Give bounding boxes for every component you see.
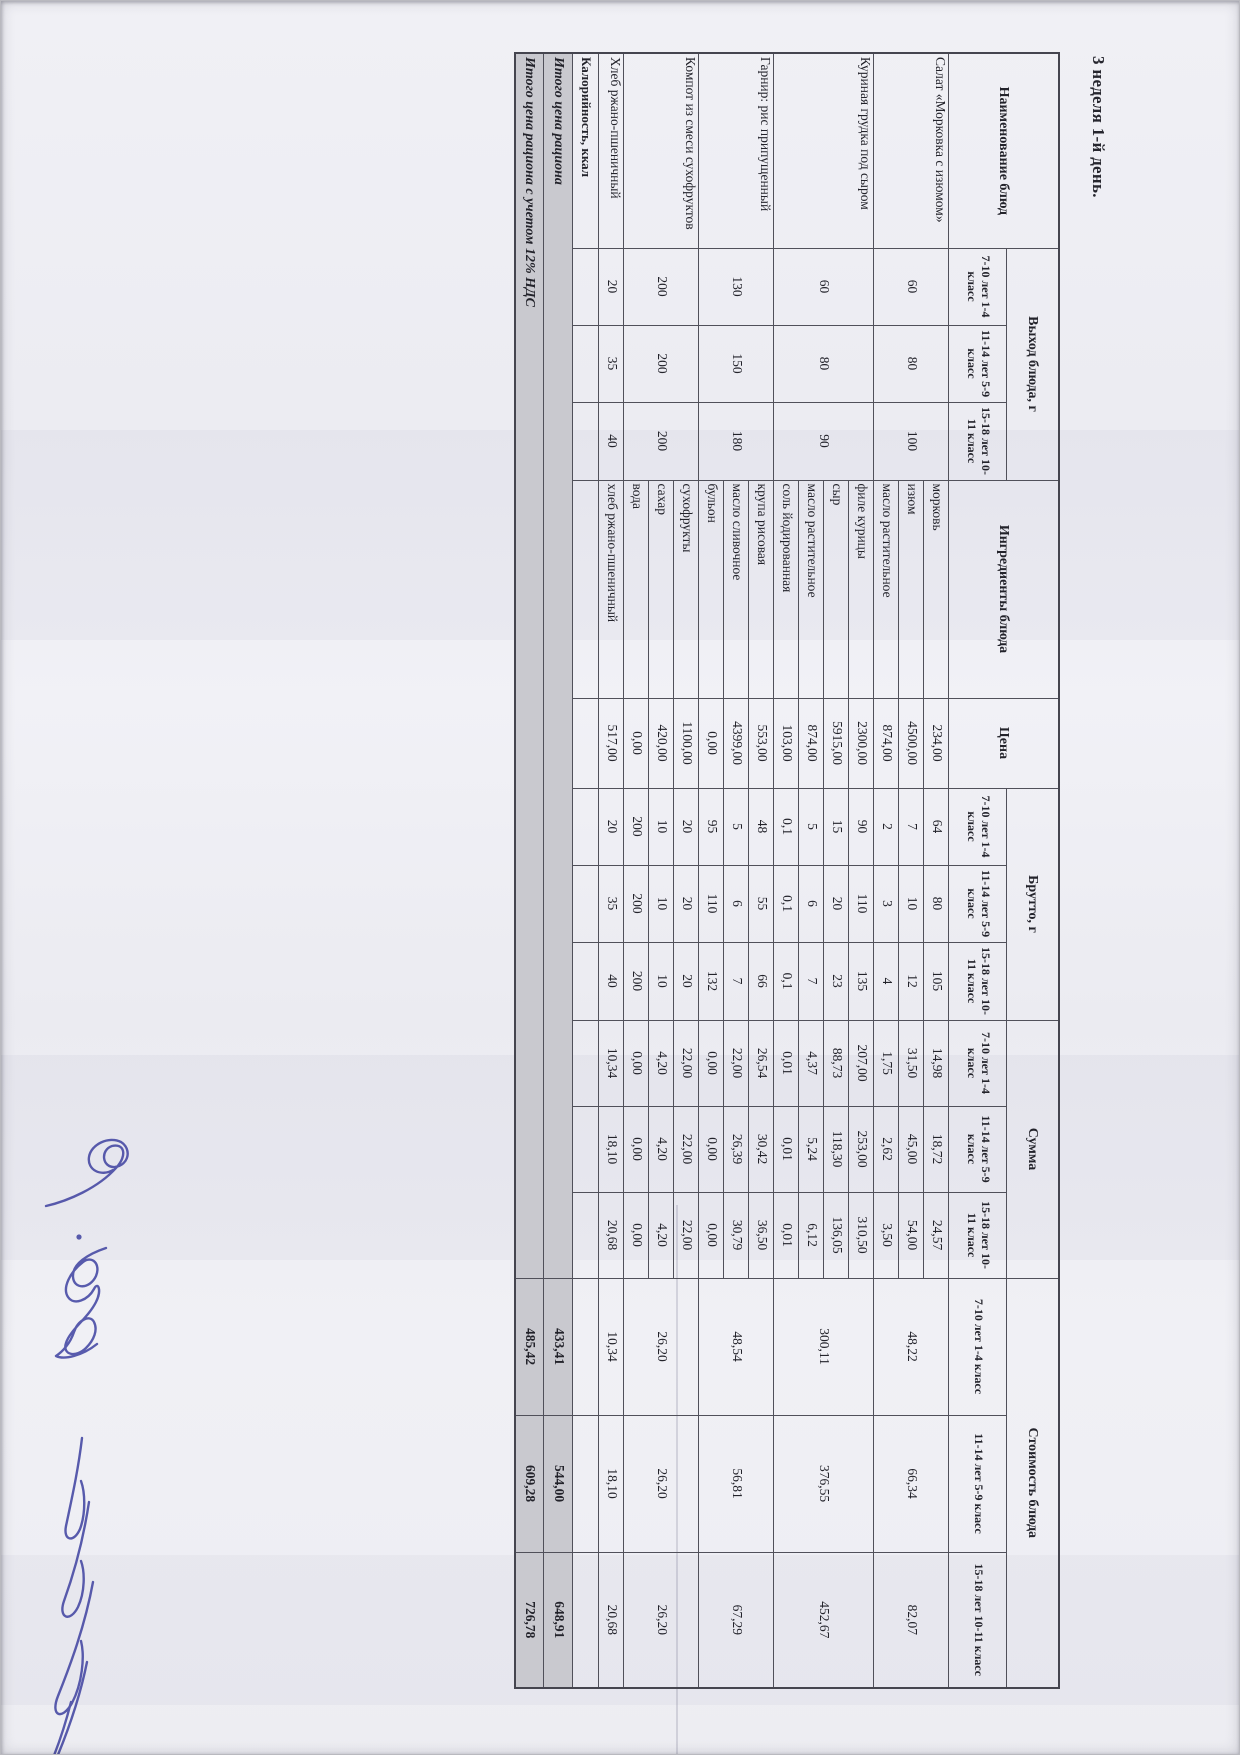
age-group-header: 15-18 лет 10-11 класс	[949, 942, 1007, 1020]
dish-name: Хлеб ржано-пшеничный	[599, 53, 624, 248]
header-price: Цена	[949, 698, 1059, 788]
totals-vat-value: 609,28	[515, 1415, 544, 1552]
cost-cell: 82,07	[874, 1552, 949, 1688]
price-cell: 0,00	[624, 698, 649, 788]
cost-cell: 10,34	[599, 1278, 624, 1415]
brutto-cell: 12	[899, 942, 924, 1020]
cost-cell: 26,20	[624, 1552, 699, 1688]
summa-cell: 22,00	[674, 1192, 699, 1278]
brutto-cell: 10	[899, 865, 924, 942]
price-cell: 4500,00	[899, 698, 924, 788]
empty-cell	[573, 865, 599, 942]
table-row: Компот из смеси сухофруктов 200 200 200 …	[674, 53, 699, 1688]
empty-cell	[573, 1106, 599, 1192]
cost-cell: 48,54	[699, 1278, 774, 1415]
summa-cell: 0,01	[774, 1192, 799, 1278]
price-cell: 420,00	[649, 698, 674, 788]
cost-cell: 452,67	[774, 1552, 874, 1688]
brutto-cell: 4	[874, 942, 899, 1020]
summa-cell: 5,24	[799, 1106, 824, 1192]
brutto-cell: 10	[649, 942, 674, 1020]
signature-ink-dot	[76, 1234, 81, 1239]
table-row: Куриная грудка под сыром 60 80 90 филе к…	[849, 53, 874, 1688]
yield-cell: 80	[874, 325, 949, 402]
age-group-header: 15-18 лет 10-11 класс	[949, 1552, 1007, 1688]
summa-cell: 3,50	[874, 1192, 899, 1278]
yield-cell: 150	[699, 325, 774, 402]
ingredient-cell: сухофрукты	[674, 480, 699, 698]
signature-zigzag	[55, 1582, 93, 1714]
summa-cell: 20,68	[599, 1192, 624, 1278]
empty-cell	[573, 1552, 599, 1688]
ingredient-cell: изюм	[899, 480, 924, 698]
signature-name-script	[56, 1248, 106, 1358]
header-yield: Выход блюда, г	[1007, 248, 1059, 480]
brutto-cell: 200	[624, 788, 649, 865]
signature-zigzag	[62, 1502, 89, 1617]
brutto-cell: 95	[699, 788, 724, 865]
header-name: Наименование блюд	[949, 53, 1059, 248]
cost-cell: 26,20	[624, 1415, 699, 1552]
age-group-header: 7-10 лет 1-4 класс	[949, 1278, 1007, 1415]
age-group-header: 7-10 лет 1-4 класс	[949, 248, 1007, 325]
summa-cell: 310,50	[849, 1192, 874, 1278]
yield-cell: 40	[599, 402, 624, 480]
brutto-cell: 7	[899, 788, 924, 865]
summa-cell: 22,00	[674, 1106, 699, 1192]
price-cell: 874,00	[874, 698, 899, 788]
summa-cell: 0,00	[699, 1192, 724, 1278]
yield-cell: 130	[699, 248, 774, 325]
ingredient-cell: масло растительное	[874, 480, 899, 698]
summa-cell: 2,62	[874, 1106, 899, 1192]
summa-cell: 118,30	[824, 1106, 849, 1192]
yield-cell: 200	[624, 325, 699, 402]
empty-cell	[573, 1415, 599, 1552]
price-cell: 2300,00	[849, 698, 874, 788]
summa-cell: 36,50	[749, 1192, 774, 1278]
empty-cell	[573, 248, 599, 325]
ingredient-cell: сахар	[649, 480, 674, 698]
ingredient-cell: сыр	[824, 480, 849, 698]
brutto-cell: 6	[724, 865, 749, 942]
summa-cell: 0,01	[774, 1106, 799, 1192]
brutto-cell: 200	[624, 865, 649, 942]
page-title: 3 неделя 1-й день.	[1060, 52, 1130, 1688]
dish-name: Куриная грудка под сыром	[774, 53, 874, 248]
yield-cell: 20	[599, 248, 624, 325]
menu-cost-table: Наименование блюд Выход блюда, г Ингреди…	[514, 52, 1060, 1689]
price-cell: 1100,00	[674, 698, 699, 788]
price-cell: 553,00	[749, 698, 774, 788]
brutto-cell: 0,1	[774, 942, 799, 1020]
ingredient-cell: крупа рисовая	[749, 480, 774, 698]
yield-cell: 90	[774, 402, 874, 480]
brutto-cell: 2	[874, 788, 899, 865]
summa-cell: 136,05	[824, 1192, 849, 1278]
ingredient-cell: соль йодированная	[774, 480, 799, 698]
brutto-cell: 80	[924, 865, 949, 942]
summa-cell: 24,57	[924, 1192, 949, 1278]
totals-vat-value: 726,78	[515, 1552, 544, 1688]
cost-cell: 18,10	[599, 1415, 624, 1552]
summa-cell: 22,00	[674, 1020, 699, 1106]
price-cell: 103,00	[774, 698, 799, 788]
yield-cell: 60	[774, 248, 874, 325]
summa-cell: 207,00	[849, 1020, 874, 1106]
cost-cell: 66,34	[874, 1415, 949, 1552]
brutto-cell: 0,1	[774, 788, 799, 865]
brutto-cell: 23	[824, 942, 849, 1020]
summa-cell: 88,73	[824, 1020, 849, 1106]
summa-cell: 4,20	[649, 1192, 674, 1278]
brutto-cell: 5	[724, 788, 749, 865]
summa-cell: 26,39	[724, 1106, 749, 1192]
age-group-header: 11-14 лет 5-9 класс	[949, 325, 1007, 402]
summa-cell: 18,10	[599, 1106, 624, 1192]
brutto-cell: 3	[874, 865, 899, 942]
price-cell: 234,00	[924, 698, 949, 788]
header-ingredients: Ингредиенты блюда	[949, 480, 1059, 698]
summa-cell: 4,20	[649, 1106, 674, 1192]
brutto-cell: 0,1	[774, 865, 799, 942]
ingredient-cell: бульон	[699, 480, 724, 698]
ingredient-cell: филе курицы	[849, 480, 874, 698]
yield-cell: 180	[699, 402, 774, 480]
totals-value: 544,00	[544, 1415, 573, 1552]
summa-cell: 30,79	[724, 1192, 749, 1278]
calories-label: Калорийность, ккал	[573, 53, 599, 248]
totals-vat-label: Итого цена рациона с учетом 12% НДС	[515, 53, 544, 1278]
summa-cell: 4,37	[799, 1020, 824, 1106]
summa-cell: 14,98	[924, 1020, 949, 1106]
summa-cell: 54,00	[899, 1192, 924, 1278]
brutto-cell: 6	[799, 865, 824, 942]
yield-cell: 100	[874, 402, 949, 480]
cost-cell: 56,81	[699, 1415, 774, 1552]
brutto-cell: 20	[674, 788, 699, 865]
empty-cell	[573, 698, 599, 788]
empty-cell	[573, 1278, 599, 1415]
brutto-cell: 64	[924, 788, 949, 865]
totals-label: Итого цена рациона	[544, 53, 573, 1278]
summa-cell: 0,00	[624, 1020, 649, 1106]
yield-cell: 60	[874, 248, 949, 325]
brutto-cell: 5	[799, 788, 824, 865]
cost-cell: 48,22	[874, 1278, 949, 1415]
cost-cell: 26,20	[624, 1278, 699, 1415]
yield-cell: 35	[599, 325, 624, 402]
brutto-cell: 40	[599, 942, 624, 1020]
summa-cell: 30,42	[749, 1106, 774, 1192]
signature-zigzag	[65, 1438, 84, 1538]
brutto-cell: 20	[824, 865, 849, 942]
age-group-header: 15-18 лет 10-11 класс	[949, 1192, 1007, 1278]
yield-cell: 80	[774, 325, 874, 402]
table-row: Гарнир: рис припущенный 130 150 180 круп…	[749, 53, 774, 1688]
brutto-cell: 20	[599, 788, 624, 865]
price-cell: 4399,00	[724, 698, 749, 788]
age-group-header: 11-14 лет 5-9 класс	[949, 865, 1007, 942]
ingredient-cell: вода	[624, 480, 649, 698]
summa-cell: 0,00	[624, 1106, 649, 1192]
cost-cell: 67,29	[699, 1552, 774, 1688]
signature-zigzag	[55, 1662, 87, 1755]
brutto-cell: 110	[699, 865, 724, 942]
brutto-cell: 10	[649, 865, 674, 942]
brutto-cell: 132	[699, 942, 724, 1020]
yield-cell: 200	[624, 248, 699, 325]
brutto-cell: 110	[849, 865, 874, 942]
summa-cell: 4,20	[649, 1020, 674, 1106]
brutto-cell: 105	[924, 942, 949, 1020]
ingredient-cell: масло сливочное	[724, 480, 749, 698]
empty-cell	[573, 325, 599, 402]
summa-cell: 0,00	[699, 1020, 724, 1106]
empty-cell	[573, 942, 599, 1020]
ingredient-cell: морковь	[924, 480, 949, 698]
summa-cell: 253,00	[849, 1106, 874, 1192]
totals-value: 648,91	[544, 1552, 573, 1688]
brutto-cell: 48	[749, 788, 774, 865]
summa-cell: 0,00	[624, 1192, 649, 1278]
brutto-cell: 35	[599, 865, 624, 942]
brutto-cell: 20	[674, 865, 699, 942]
calories-row: Калорийность, ккал	[573, 53, 599, 1688]
brutto-cell: 200	[624, 942, 649, 1020]
price-cell: 874,00	[799, 698, 824, 788]
brutto-cell: 55	[749, 865, 774, 942]
summa-cell: 10,34	[599, 1020, 624, 1106]
dish-name: Салат «Морковка с изюмом»	[874, 53, 949, 248]
summa-cell: 31,50	[899, 1020, 924, 1106]
table-row: Салат «Морковка с изюмом» 60 80 100 морк…	[924, 53, 949, 1688]
totals-vat-value: 485,42	[515, 1278, 544, 1415]
yield-cell: 200	[624, 402, 699, 480]
age-group-header: 15-18 лет 10-11 класс	[949, 402, 1007, 480]
brutto-cell: 15	[824, 788, 849, 865]
signature-zigzag	[51, 1702, 71, 1755]
header-row-main: Наименование блюд Выход блюда, г Ингреди…	[1007, 53, 1059, 1688]
cost-cell: 300,11	[774, 1278, 874, 1415]
scanned-page: { "page": { "title": "3 неделя 1-й день.…	[0, 0, 1240, 1755]
brutto-cell: 7	[724, 942, 749, 1020]
dish-name: Гарнир: рис припущенный	[699, 53, 774, 248]
summa-cell: 1,75	[874, 1020, 899, 1106]
price-cell: 0,00	[699, 698, 724, 788]
summa-cell: 45,00	[899, 1106, 924, 1192]
signature-flourish	[46, 1140, 128, 1206]
summa-cell: 0,01	[774, 1020, 799, 1106]
empty-cell	[573, 788, 599, 865]
age-group-header: 7-10 лет 1-4 класс	[949, 788, 1007, 865]
brutto-cell: 7	[799, 942, 824, 1020]
header-summa: Сумма	[1007, 1020, 1059, 1278]
brutto-cell: 20	[674, 942, 699, 1020]
totals-row: Итого цена рациона 433,41 544,00 648,91	[544, 53, 573, 1688]
ingredient-cell: хлеб ржано-пшеничный	[599, 480, 624, 698]
rotated-document-content: 3 неделя 1-й день. Наименование блюд Вых…	[514, 52, 1130, 1688]
header-row-age-groups: 7-10 лет 1-4 класс 11-14 лет 5-9 класс 1…	[949, 53, 1007, 1688]
totals-value: 433,41	[544, 1278, 573, 1415]
totals-vat-row: Итого цена рациона с учетом 12% НДС 485,…	[515, 53, 544, 1688]
empty-cell	[573, 1192, 599, 1278]
empty-cell	[573, 480, 599, 698]
summa-cell: 26,54	[749, 1020, 774, 1106]
header-cost: Стоимость блюда	[1007, 1278, 1059, 1688]
brutto-cell: 66	[749, 942, 774, 1020]
cost-cell: 376,55	[774, 1415, 874, 1552]
cost-cell: 20,68	[599, 1552, 624, 1688]
table-row: Хлеб ржано-пшеничный 20 35 40 хлеб ржано…	[599, 53, 624, 1688]
summa-cell: 22,00	[724, 1020, 749, 1106]
empty-cell	[573, 1020, 599, 1106]
price-cell: 517,00	[599, 698, 624, 788]
header-brutto: Брутто, г	[1007, 788, 1059, 1020]
summa-cell: 6,12	[799, 1192, 824, 1278]
age-group-header: 11-14 лет 5-9 класс	[949, 1106, 1007, 1192]
age-group-header: 11-14 лет 5-9 класс	[949, 1415, 1007, 1552]
summa-cell: 18,72	[924, 1106, 949, 1192]
price-cell: 5915,00	[824, 698, 849, 788]
summa-cell: 0,00	[699, 1106, 724, 1192]
brutto-cell: 90	[849, 788, 874, 865]
dish-name: Компот из смеси сухофруктов	[624, 53, 699, 248]
brutto-cell: 10	[649, 788, 674, 865]
ingredient-cell: масло растительное	[799, 480, 824, 698]
age-group-header: 7-10 лет 1-4 класс	[949, 1020, 1007, 1106]
brutto-cell: 135	[849, 942, 874, 1020]
empty-cell	[573, 402, 599, 480]
